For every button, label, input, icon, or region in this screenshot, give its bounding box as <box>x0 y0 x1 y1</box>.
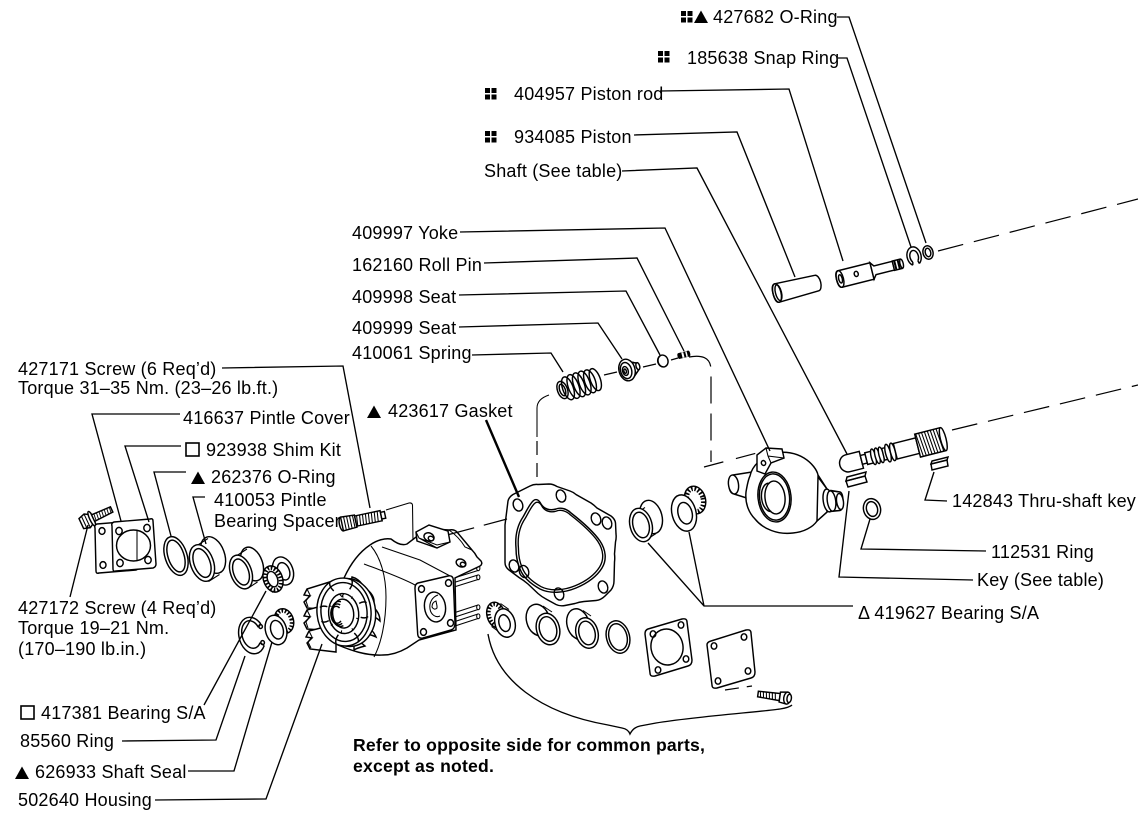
svg-text:Torque 19–21 Nm.: Torque 19–21 Nm. <box>18 618 169 638</box>
svg-text:262376 O-Ring: 262376 O-Ring <box>211 467 336 487</box>
svg-text:934085 Piston: 934085 Piston <box>514 127 632 147</box>
svg-text:Refer to opposite side for com: Refer to opposite side for common parts, <box>353 735 705 755</box>
svg-text:185638 Snap Ring: 185638 Snap Ring <box>687 48 839 68</box>
svg-text:112531 Ring: 112531 Ring <box>991 542 1094 562</box>
svg-text:417381 Bearing S/A: 417381 Bearing S/A <box>41 703 206 723</box>
svg-text:416637 Pintle Cover: 416637 Pintle Cover <box>183 408 350 428</box>
svg-text:85560 Ring: 85560 Ring <box>20 731 114 751</box>
svg-text:923938 Shim Kit: 923938 Shim Kit <box>206 440 341 460</box>
svg-text:427682 O-Ring: 427682 O-Ring <box>713 7 838 27</box>
svg-text:Key (See table): Key (See table) <box>977 570 1104 590</box>
svg-text:410061 Spring: 410061 Spring <box>352 343 472 363</box>
svg-text:404957 Piston rod: 404957 Piston rod <box>514 84 664 104</box>
svg-text:409998 Seat: 409998 Seat <box>352 287 456 307</box>
svg-text:423617 Gasket: 423617 Gasket <box>388 401 513 421</box>
svg-text:409999 Seat: 409999 Seat <box>352 318 456 338</box>
svg-text:502640 Housing: 502640 Housing <box>18 790 152 810</box>
svg-text:162160 Roll Pin: 162160 Roll Pin <box>352 255 482 275</box>
svg-text:Torque 31–35 Nm. (23–26 lb.ft: Torque 31–35 Nm. (23–26 lb.ft.) <box>18 378 278 398</box>
svg-text:Bearing Spacer: Bearing Spacer <box>214 511 341 531</box>
svg-text:142843 Thru-shaft key: 142843 Thru-shaft key <box>952 491 1136 511</box>
svg-text:Δ 419627 Bearing S/A: Δ 419627 Bearing S/A <box>858 603 1039 623</box>
svg-text:427171 Screw (6 Req’d): 427171 Screw (6 Req’d) <box>18 359 217 379</box>
svg-text:(170–190 lb.in.): (170–190 lb.in.) <box>18 639 146 659</box>
svg-text:Shaft (See table): Shaft (See table) <box>484 161 622 181</box>
svg-text:410053 Pintle: 410053 Pintle <box>214 490 327 510</box>
svg-text:427172 Screw (4 Req’d): 427172 Screw (4 Req’d) <box>18 598 217 618</box>
svg-text:except as noted.: except as noted. <box>353 756 494 776</box>
svg-text:626933 Shaft Seal: 626933 Shaft Seal <box>35 762 187 782</box>
svg-text:409997 Yoke: 409997 Yoke <box>352 223 458 243</box>
